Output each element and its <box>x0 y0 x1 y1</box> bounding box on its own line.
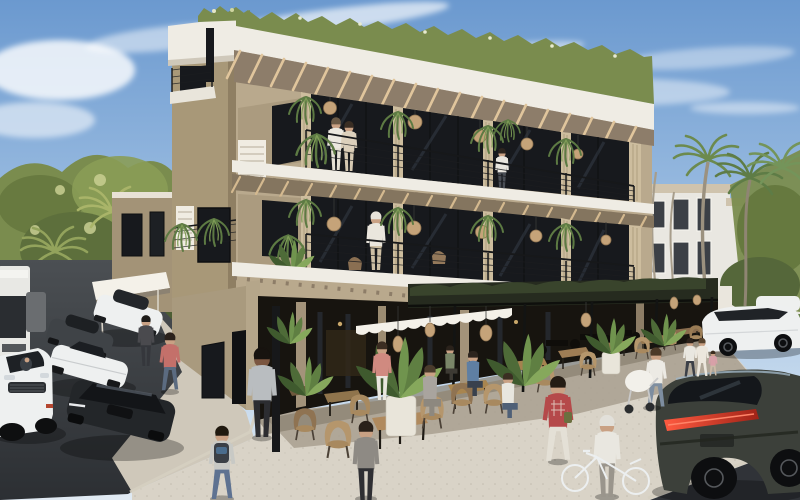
white-bus <box>0 266 30 356</box>
tower-slot-window <box>206 28 214 82</box>
white-planter <box>386 396 416 436</box>
scene-canvas: Sunny 3D visualization of a modern tropi… <box>0 0 800 500</box>
driver <box>25 358 30 363</box>
architectural-rendering: Sunny 3D visualization of a modern tropi… <box>0 0 800 500</box>
grey-truck <box>26 292 46 332</box>
dark-suv <box>656 370 800 499</box>
white-sedan <box>702 305 800 356</box>
white-luxury-suv <box>0 348 57 441</box>
